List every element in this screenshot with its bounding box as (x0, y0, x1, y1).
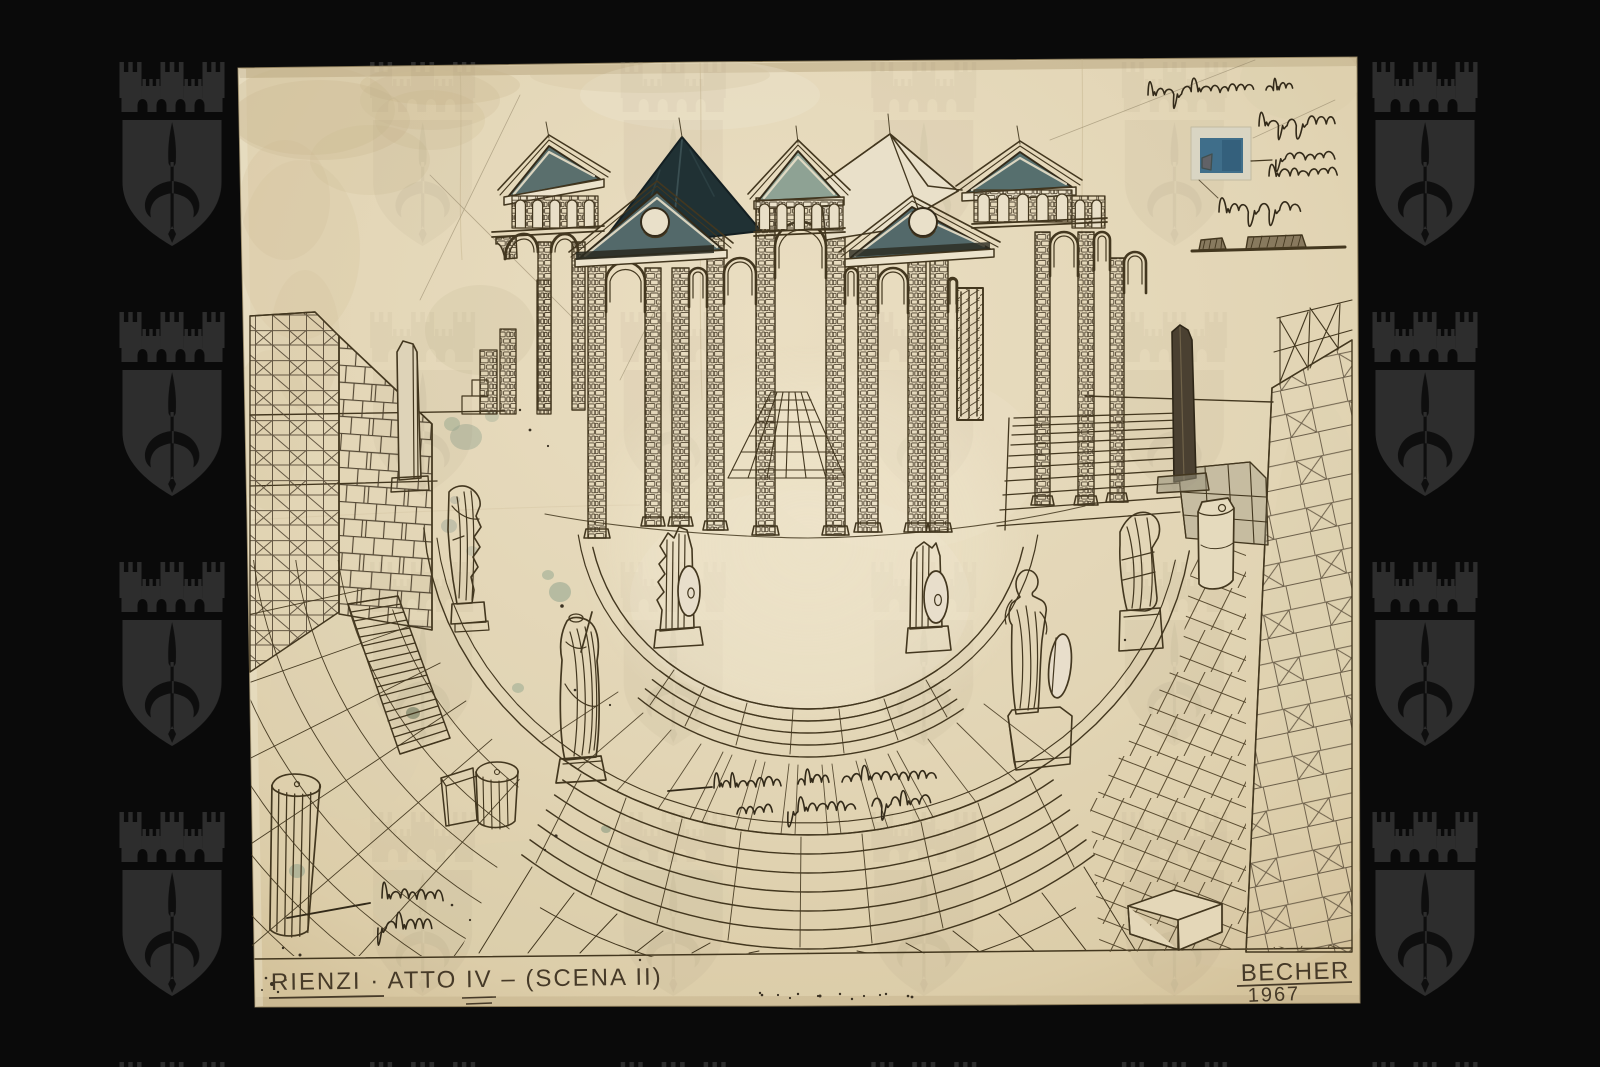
svg-text:1967: 1967 (1247, 983, 1300, 1007)
svg-text:RIENZI · ATTO IV – (SCENA II): RIENZI · ATTO IV – (SCENA II) (271, 964, 663, 996)
